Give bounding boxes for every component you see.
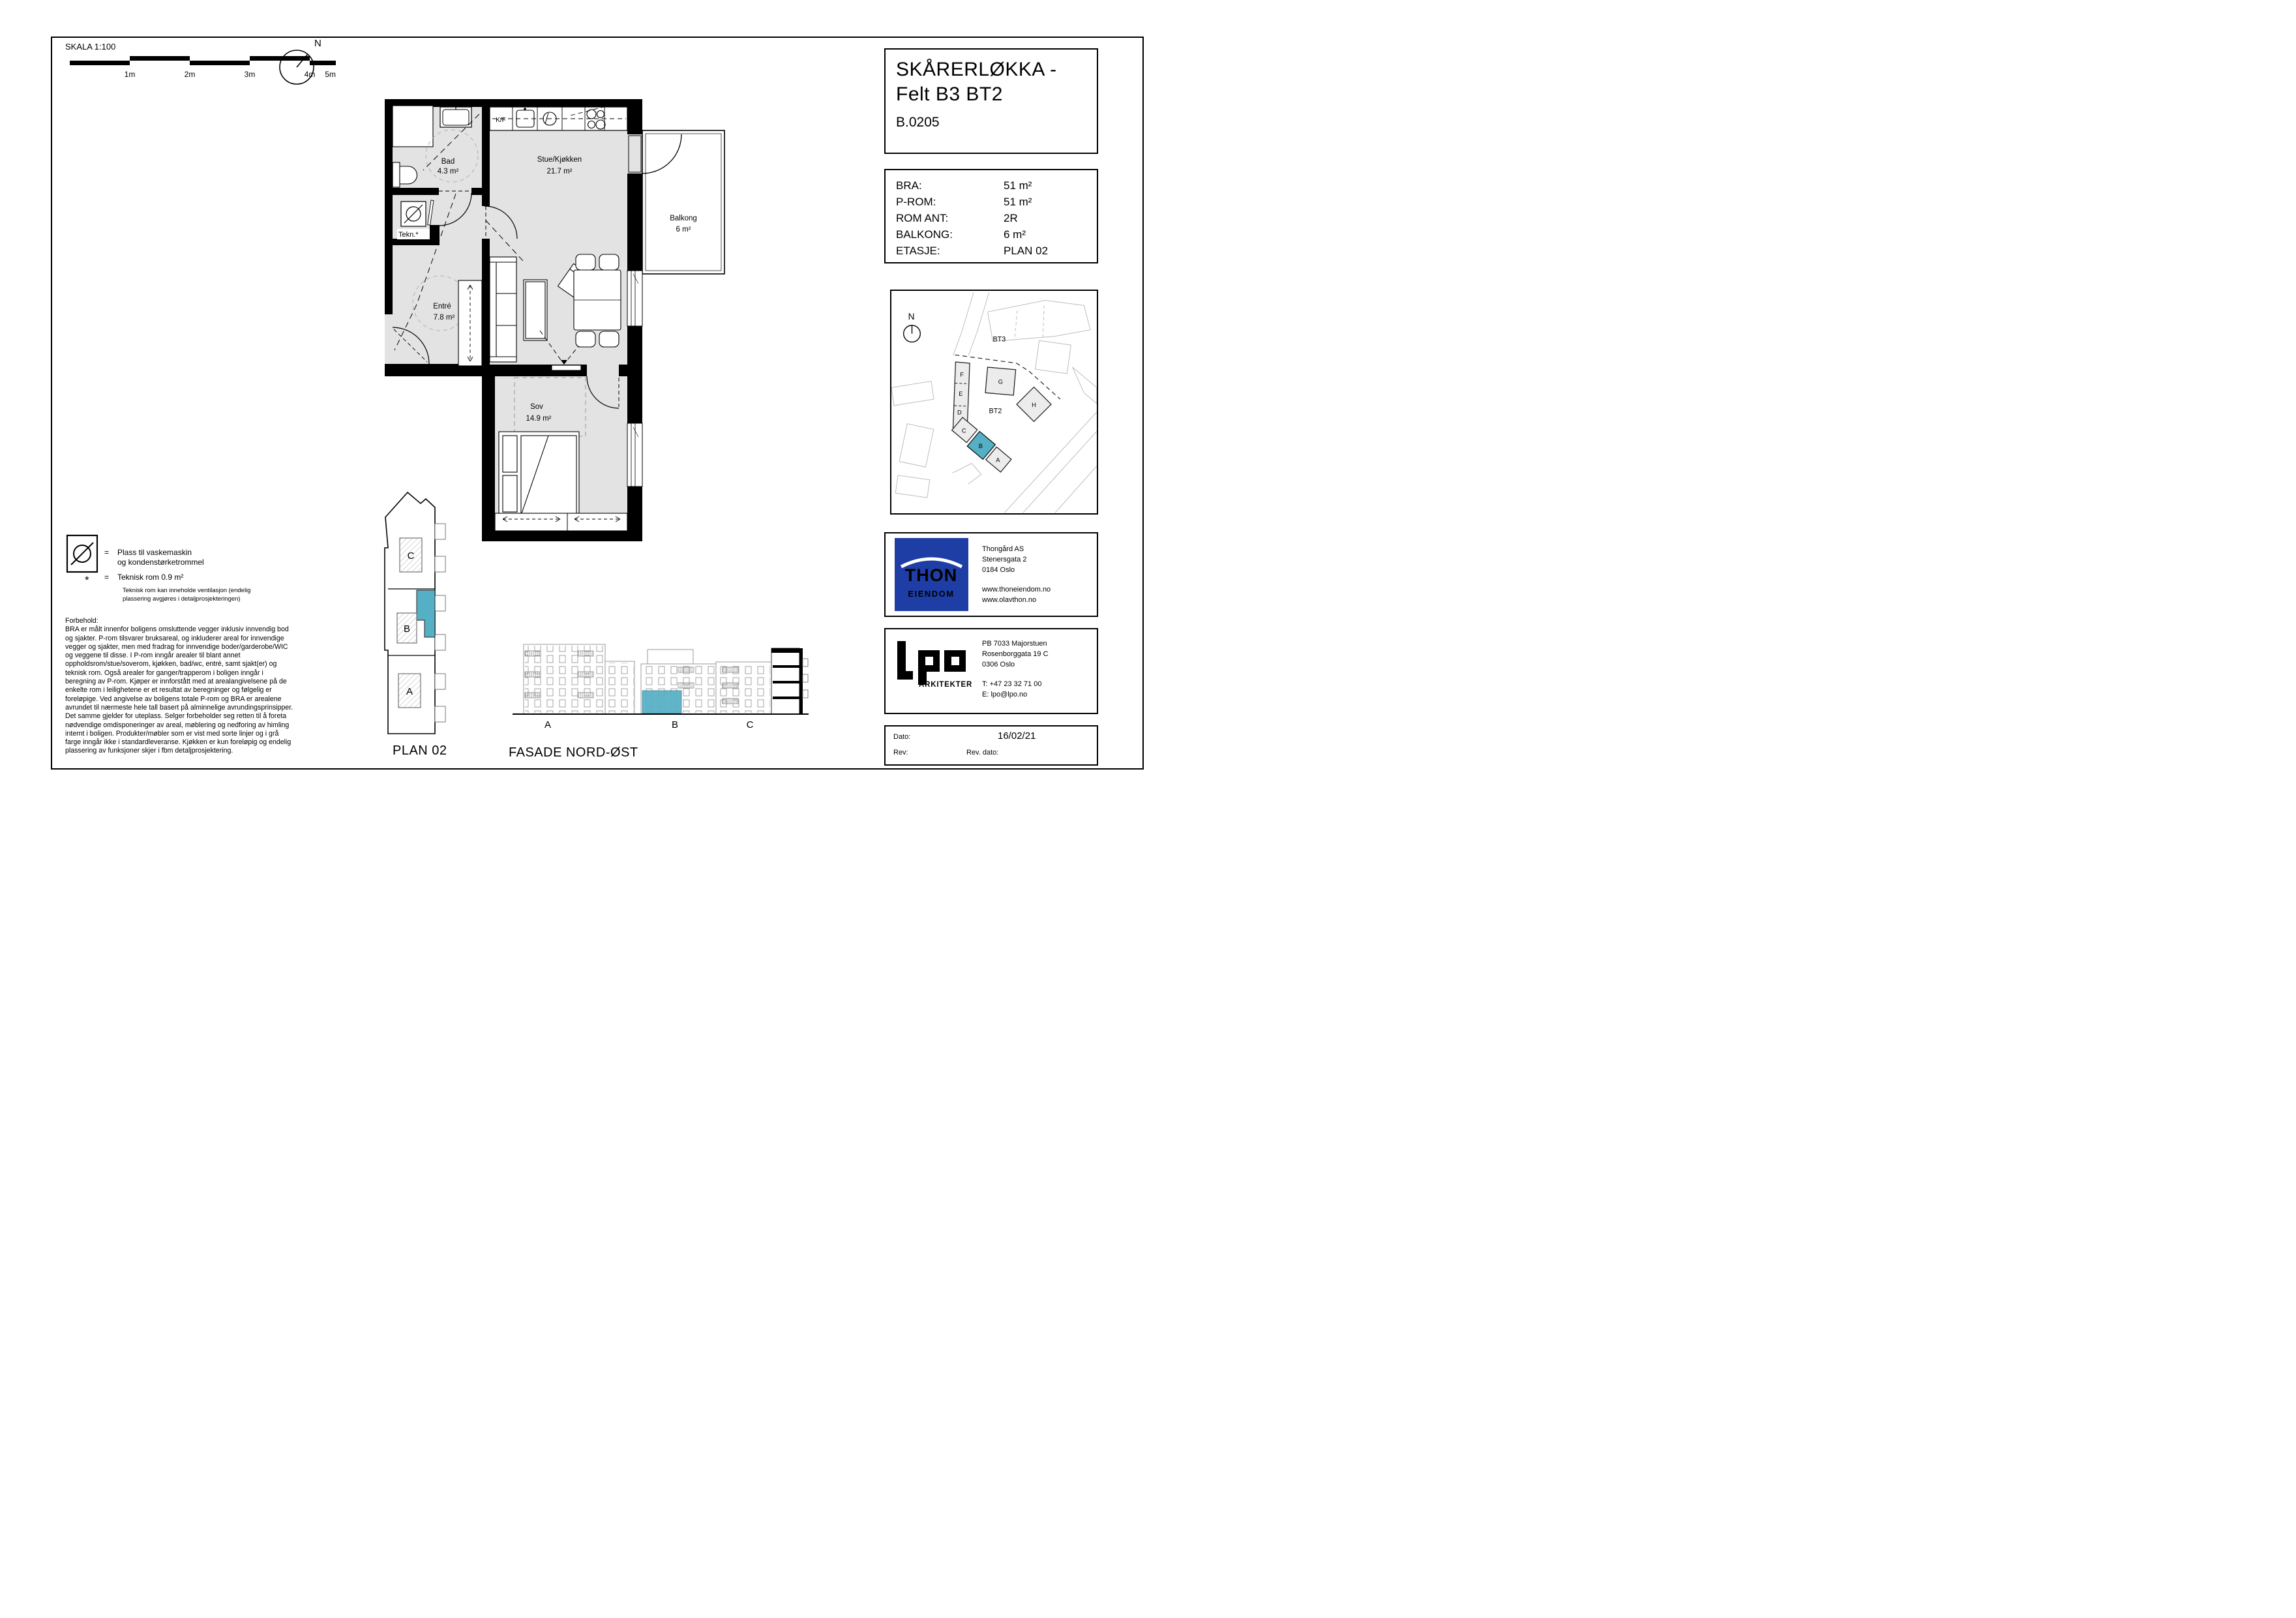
info-row-prom: P-ROM: 51 m² (896, 196, 1088, 212)
site-label-h: H (1032, 402, 1036, 408)
info-row-romant: ROM ANT: 2R (896, 212, 1088, 228)
thon-logo-sub: EIENDOM (908, 589, 954, 599)
architect-address2: Rosenborggata 19 C (982, 649, 1049, 659)
facade-caption: FASADE NORD-ØST (509, 745, 638, 760)
drawing-sheet: SKALA 1:100 1m 2m 3m 4m 5m N (0, 0, 1148, 809)
lpo-logo-sub: ARKITEKTER (919, 681, 972, 689)
info-label: BRA: (896, 179, 922, 192)
disclaimer-line: BRA er målt innenfor boligens omsluttend… (65, 625, 355, 634)
facade-drawing: A B C (507, 631, 814, 736)
keyplan-label-a: A (406, 686, 413, 697)
keyplan-label-b: B (404, 623, 410, 635)
site-label-a: A (996, 457, 1000, 464)
info-value: PLAN 02 (1004, 245, 1048, 258)
chair-icon (576, 254, 595, 270)
sofa-icon (490, 257, 516, 362)
site-label-b: B (979, 443, 983, 449)
rev-date-label: Rev. dato: (966, 749, 998, 757)
room-area-sov: 14.9 m² (526, 415, 552, 423)
bed-icon (499, 432, 579, 517)
key-plan: C B A (381, 486, 466, 743)
balcony (629, 130, 724, 274)
scale-seg-1 (70, 61, 130, 65)
site-label-d: D (957, 410, 962, 416)
architect-phone: T: +47 23 32 71 00 (982, 679, 1049, 689)
developer-address2: 0184 Oslo (982, 565, 1051, 575)
project-title-line1: SKÅRERLØKKA - (896, 57, 1057, 82)
north-label: N (314, 38, 321, 49)
scale-tick-2m: 2m (185, 70, 196, 79)
facade-label-c: C (747, 719, 754, 730)
north-arrow: N (274, 29, 339, 95)
legend-washer-icon (65, 533, 104, 574)
legend-washer-line1: Plass til vaskemaskin (117, 548, 204, 558)
legend-tech-note1: Teknisk rom kan inneholde ventilasjon (e… (123, 587, 250, 595)
room-area-stue: 21.7 m² (547, 168, 573, 175)
legend-tech-equals: = (104, 573, 109, 582)
keyplan-label-c: C (408, 550, 415, 562)
architect-address3: 0306 Oslo (982, 659, 1049, 670)
north-needle (297, 54, 308, 67)
developer-block: THON EIENDOM Thongård AS Stenersgata 2 0… (884, 532, 1098, 617)
chair-icon (599, 254, 619, 270)
site-label-g: G (998, 378, 1003, 385)
disclaimer-line: Det samme gjelder for uteplass. Selger f… (65, 712, 355, 721)
facade-block-a (524, 644, 634, 714)
rev-label: Rev: (893, 749, 908, 757)
room-label-sov: Sov (530, 403, 543, 411)
disclaimer-line: farge inngår ikke i standardleveranse. K… (65, 738, 355, 747)
facade-highlight-unit (642, 691, 681, 713)
architect-address1: PB 7033 Majorstuen (982, 638, 1049, 649)
legend-tech-title: Teknisk rom 0.9 m² (117, 573, 183, 582)
info-value: 51 m² (1004, 179, 1032, 192)
room-label-entre: Entré (433, 303, 451, 310)
chair-icon (576, 331, 595, 347)
info-value: 51 m² (1004, 196, 1032, 209)
disclaimer-line: og veggene til disse. I P-rom inngår are… (65, 652, 355, 660)
coffee-table-icon (524, 280, 547, 340)
info-label: P-ROM: (896, 196, 936, 209)
project-title-line2: Felt B3 BT2 (896, 82, 1003, 107)
info-label: BALKONG: (896, 228, 953, 241)
disclaimer-line: enkelte rom i leilighetene er et resulta… (65, 686, 355, 695)
thon-logo-text: THON (905, 565, 958, 585)
scale-label: SKALA 1:100 (65, 42, 115, 52)
site-label-c: C (962, 427, 966, 434)
site-surroundings (891, 293, 1097, 513)
room-area-bad: 4.3 m² (438, 168, 459, 175)
entre-wardrobe (458, 280, 482, 366)
fridge-freezer-label: K/F (496, 117, 506, 124)
info-row-etasje: ETASJE: PLAN 02 (896, 245, 1088, 261)
site-label-f: F (960, 372, 964, 378)
washbasin-icon (440, 107, 471, 127)
architect-email[interactable]: E: lpo@lpo.no (982, 689, 1049, 700)
scale-seg-3 (190, 61, 250, 65)
scale-tick-3m: 3m (245, 70, 256, 79)
site-label-e: E (959, 391, 962, 397)
room-label-balkong: Balkong (670, 215, 697, 222)
tv-bench-icon (552, 365, 581, 370)
room-area-balkong: 6 m² (676, 226, 691, 233)
floor-plan: K/F (375, 88, 750, 545)
lpo-logo: ARKITEKTER (897, 641, 979, 701)
disclaimer-line: nødvendige omdisponeringer av areal, møb… (65, 721, 355, 730)
info-value: 2R (1004, 212, 1018, 225)
info-label: ROM ANT: (896, 212, 948, 225)
disclaimer-line: plassering av funksjoner skjer i fbm det… (65, 747, 355, 755)
thon-logo: THON EIENDOM (895, 538, 968, 611)
developer-name: Thongård AS (982, 544, 1051, 554)
disclaimer-line: internt i boligen. Produkter/møbler som … (65, 730, 355, 738)
chair-icon (599, 331, 619, 347)
site-label-bt3: BT3 (992, 335, 1006, 343)
room-label-stue: Stue/Kjøkken (537, 156, 582, 164)
title-block: SKÅRERLØKKA - Felt B3 BT2 B.0205 (884, 48, 1098, 154)
sov-wardrobe-icon (495, 513, 627, 531)
site-map-box: N F E D C B A (890, 290, 1098, 515)
site-north-label: N (908, 312, 915, 322)
site-map: N F E D C B A (891, 291, 1097, 513)
date-value: 16/02/21 (998, 730, 1036, 742)
date-label: Dato: (893, 733, 910, 741)
disclaimer-line: foreløpige. Ved angivelse av boligens to… (65, 695, 355, 704)
keyplan-balconies (435, 524, 445, 722)
legend-washer-line2: og kondenstørketrommel (117, 558, 204, 567)
facade-label-a: A (544, 719, 551, 730)
developer-address1: Stenersgata 2 (982, 554, 1051, 565)
facade-section-cut (771, 648, 808, 714)
unit-id: B.0205 (896, 115, 940, 130)
room-area-entre: 7.8 m² (434, 314, 455, 322)
legend-tech-note2: plassering avgjøres i detaljprosjekterin… (123, 595, 250, 604)
scale-seg-2 (130, 56, 190, 61)
site-building-cba: C B A (952, 417, 1011, 472)
room-label-tekn: Tekn.* (398, 231, 419, 239)
facade-block-c (716, 662, 771, 714)
facade-label-b: B (672, 719, 678, 730)
developer-web2[interactable]: www.olavthon.no (982, 595, 1051, 605)
legend-star: * (85, 574, 89, 587)
revision-block: Dato: 16/02/21 Rev: Rev. dato: (884, 725, 1098, 766)
shower-icon (393, 106, 433, 147)
info-label: ETASJE: (896, 245, 940, 258)
info-value: 6 m² (1004, 228, 1026, 241)
disclaimer-heading: Forbehold: (65, 617, 355, 625)
disclaimer-line: vegger og sjakter, men med fradrag for i… (65, 643, 355, 652)
keyplan-caption: PLAN 02 (393, 743, 447, 758)
info-row-bra: BRA: 51 m² (896, 179, 1088, 196)
info-row-balkong: BALKONG: 6 m² (896, 228, 1088, 245)
disclaimer-line: beregning av P-rom. Kjøper er innforståt… (65, 678, 355, 686)
site-label-bt2: BT2 (989, 408, 1002, 415)
room-label-bad: Bad (441, 158, 455, 166)
scale-tick-1m: 1m (125, 70, 136, 79)
disclaimer-line: teknisk rom. Også arealer for ganger/tra… (65, 669, 355, 678)
info-block: BRA: 51 m² P-ROM: 51 m² ROM ANT: 2R BALK… (884, 169, 1098, 263)
disclaimer-line: og sjakter. P-rom tilsvarer bruksareal, … (65, 635, 355, 643)
architect-block: ARKITEKTER PB 7033 Majorstuen Rosenborgg… (884, 628, 1098, 714)
developer-web1[interactable]: www.thoneiendom.no (982, 584, 1051, 595)
disclaimer-line: avrundet til nærmeste hele tall basert p… (65, 704, 355, 712)
legend-washer-equals: = (104, 548, 109, 558)
site-north-arrow: N (904, 312, 921, 342)
disclaimer-line: oppholdsrom/stue/soverom, kjøkken, bad/w… (65, 660, 355, 668)
